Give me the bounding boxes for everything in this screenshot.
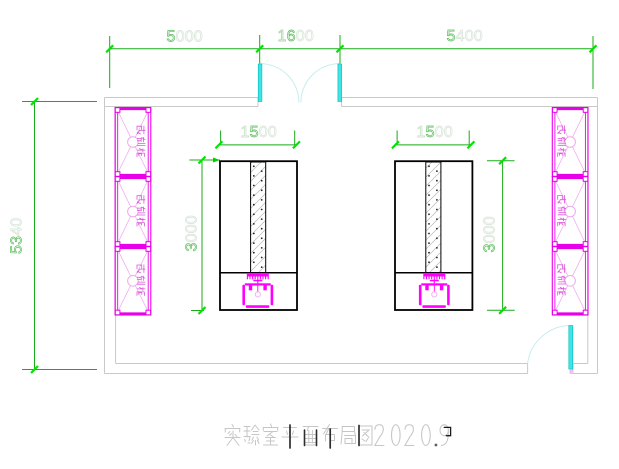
svg-text:5340: 5340 (9, 218, 26, 254)
svg-text:5400: 5400 (447, 28, 483, 45)
svg-text:1600: 1600 (278, 28, 314, 45)
svg-text:3000: 3000 (482, 216, 499, 252)
svg-text:5000: 5000 (167, 29, 203, 46)
svg-text:1500: 1500 (417, 124, 453, 141)
svg-text:3000: 3000 (184, 215, 201, 251)
svg-text:1500: 1500 (241, 124, 277, 141)
